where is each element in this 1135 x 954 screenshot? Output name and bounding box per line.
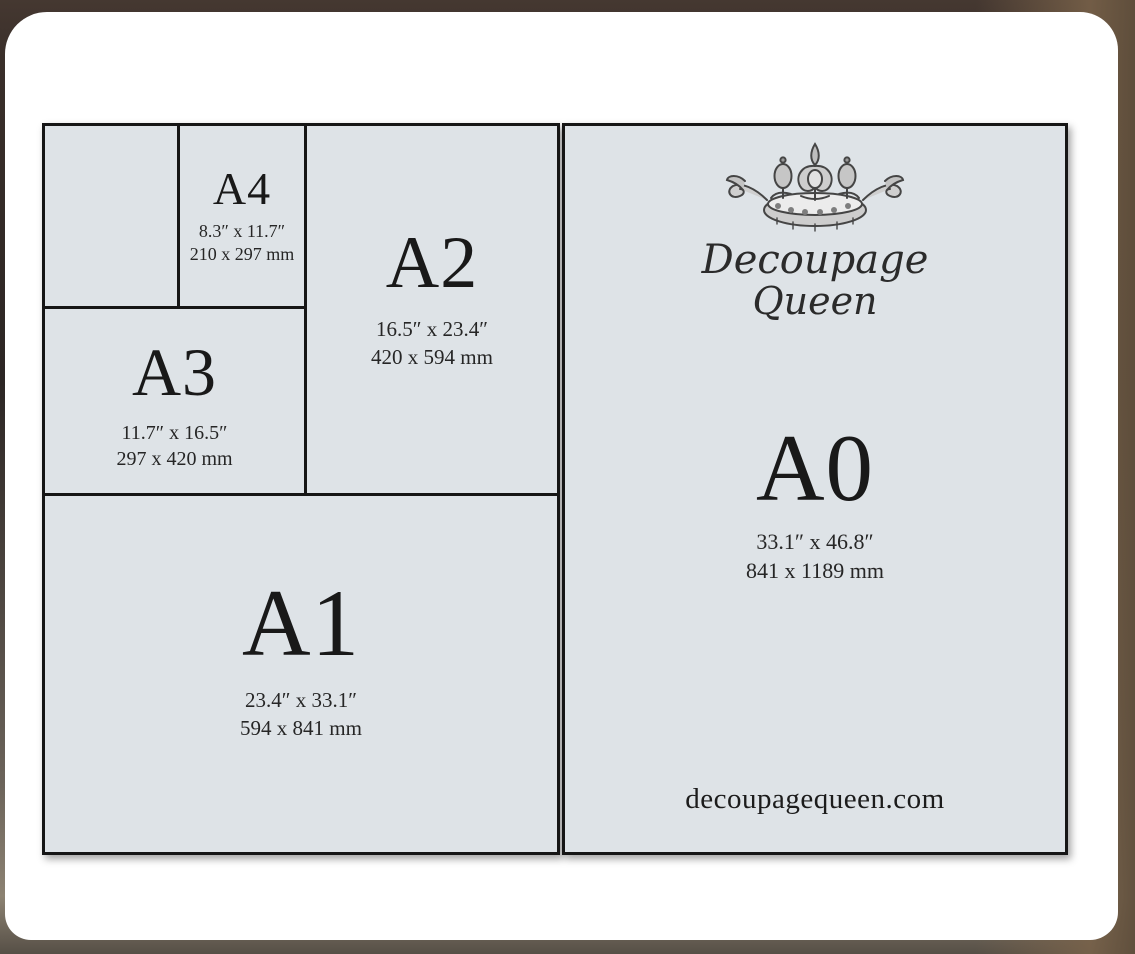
- brand-website: decoupagequeen.com: [685, 783, 944, 816]
- brand-name-line2: Queen: [702, 282, 929, 322]
- panel-a1: A1 23.4″ x 33.1″ 594 x 841 mm: [42, 493, 560, 855]
- panel-a0-inches: 33.1″ x 46.8″: [746, 528, 884, 557]
- panel-a4-mm: 210 x 297 mm: [190, 243, 295, 266]
- panel-a0: Decoupage Queen A0 33.1″ x 46.8″ 841 x 1…: [562, 123, 1068, 855]
- panel-a2: A2 16.5″ x 23.4″ 420 x 594 mm: [304, 123, 560, 496]
- panel-a2-inches: 16.5″ x 23.4″: [371, 316, 493, 343]
- panel-a4-label: A4: [213, 166, 271, 212]
- panel-a3-inches: 11.7″ x 16.5″: [116, 420, 232, 446]
- brand-name: Decoupage Queen: [702, 240, 929, 321]
- panel-a2-mm: 420 x 594 mm: [371, 344, 493, 371]
- panel-a3-mm: 297 x 420 mm: [116, 446, 232, 472]
- panel-a1-inches: 23.4″ x 33.1″: [240, 687, 362, 714]
- panel-a3-label: A3: [132, 338, 217, 406]
- panel-a0-label: A0: [756, 421, 874, 516]
- panel-a2-label: A2: [386, 226, 478, 300]
- panel-a4-inches: 8.3″ x 11.7″: [190, 220, 295, 243]
- photo-background: A4 8.3″ x 11.7″ 210 x 297 mm A2 16.5″ x …: [0, 0, 1135, 954]
- panel-a3: A3 11.7″ x 16.5″ 297 x 420 mm: [42, 306, 307, 496]
- panel-a4: A4 8.3″ x 11.7″ 210 x 297 mm: [177, 123, 307, 309]
- panel-a1-label: A1: [242, 576, 360, 671]
- brand-name-line1: Decoupage: [702, 240, 929, 282]
- panel-a1-mm: 594 x 841 mm: [240, 715, 362, 742]
- product-image-card: A4 8.3″ x 11.7″ 210 x 297 mm A2 16.5″ x …: [5, 12, 1118, 940]
- panel-blank: [42, 123, 180, 309]
- crown-icon: [715, 138, 915, 238]
- paper-size-diagram: A4 8.3″ x 11.7″ 210 x 297 mm A2 16.5″ x …: [42, 123, 1068, 855]
- panel-a0-mm: 841 x 1189 mm: [746, 557, 884, 586]
